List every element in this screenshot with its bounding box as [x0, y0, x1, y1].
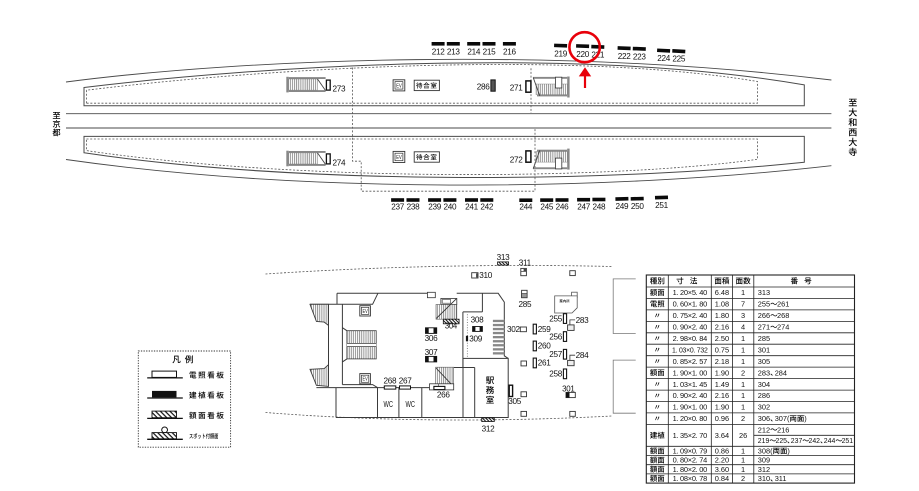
svg-text:268: 268: [777, 311, 789, 320]
svg-text:1. 09×0. 79: 1. 09×0. 79: [673, 447, 708, 456]
svg-text:237: 237: [791, 438, 803, 445]
svg-text:306: 306: [425, 334, 439, 343]
svg-text:1.80: 1.80: [715, 311, 729, 320]
svg-text:212: 212: [758, 425, 770, 434]
svg-text:1: 1: [741, 357, 745, 366]
svg-text:250: 250: [631, 202, 645, 211]
svg-text:241: 241: [465, 203, 479, 212]
svg-text:1. 03×0. 732: 1. 03×0. 732: [672, 347, 708, 354]
svg-text:1: 1: [741, 380, 745, 389]
svg-text:219: 219: [554, 49, 568, 58]
svg-text:2: 2: [741, 414, 745, 423]
svg-text:1: 1: [741, 391, 745, 400]
svg-text:255: 255: [549, 314, 563, 323]
svg-text:306: 306: [758, 414, 770, 423]
svg-text:286: 286: [477, 82, 491, 91]
svg-text:3: 3: [741, 311, 745, 320]
svg-text:307(: 307(: [775, 414, 790, 423]
svg-text:285: 285: [758, 334, 770, 343]
svg-text:284: 284: [775, 368, 787, 377]
svg-text:0. 90×2. 40: 0. 90×2. 40: [673, 391, 708, 400]
svg-text:1: 1: [741, 465, 745, 474]
svg-text:1. 90×1. 00: 1. 90×1. 00: [673, 368, 708, 377]
svg-text:304: 304: [445, 322, 458, 331]
svg-text:3.64: 3.64: [715, 431, 729, 440]
svg-text:0. 90×2. 40: 0. 90×2. 40: [673, 323, 708, 332]
svg-text:WC: WC: [405, 399, 415, 409]
svg-text:271: 271: [510, 83, 524, 92]
svg-text:6.48: 6.48: [715, 288, 729, 297]
svg-text:WC: WC: [384, 399, 394, 409]
svg-text:0.96: 0.96: [715, 414, 729, 423]
svg-text:242: 242: [809, 438, 821, 445]
svg-text:0. 60×1. 80: 0. 60×1. 80: [673, 300, 708, 309]
svg-text:222: 222: [618, 52, 632, 61]
svg-text:238: 238: [407, 203, 421, 212]
svg-text:2: 2: [741, 368, 745, 377]
svg-text:2.50: 2.50: [715, 334, 729, 343]
svg-text:220: 220: [576, 50, 590, 59]
svg-text:308(: 308(: [758, 447, 773, 456]
svg-text:1. 80×2. 00: 1. 80×2. 00: [673, 465, 708, 474]
svg-text:224: 224: [657, 54, 671, 63]
svg-text:EV: EV: [396, 83, 402, 89]
svg-text:248: 248: [593, 202, 607, 211]
svg-text:283: 283: [576, 316, 590, 325]
svg-text:244: 244: [824, 438, 836, 445]
svg-text:251: 251: [842, 438, 854, 445]
svg-text:312: 312: [758, 465, 770, 474]
svg-text:1.90: 1.90: [715, 368, 729, 377]
svg-text:3.60: 3.60: [715, 465, 729, 474]
svg-text:1: 1: [741, 345, 745, 354]
svg-text:1: 1: [741, 288, 745, 297]
svg-text:311: 311: [775, 474, 787, 483]
svg-text:225: 225: [776, 438, 788, 445]
svg-text:309: 309: [469, 335, 483, 344]
svg-text:313: 313: [497, 253, 511, 262]
svg-text:223: 223: [633, 52, 647, 61]
svg-text:257: 257: [549, 350, 563, 359]
svg-text:268: 268: [384, 377, 398, 386]
svg-text:309: 309: [758, 456, 770, 465]
svg-text:259: 259: [538, 325, 552, 334]
svg-text:237: 237: [391, 203, 405, 212]
svg-text:302: 302: [507, 325, 521, 334]
svg-text:313: 313: [758, 288, 770, 297]
svg-text:2. 98×0. 84: 2. 98×0. 84: [673, 334, 708, 343]
svg-text:2: 2: [741, 474, 745, 483]
svg-text:284: 284: [576, 351, 590, 360]
svg-text:273: 273: [333, 85, 347, 94]
svg-text:258: 258: [549, 369, 563, 378]
svg-text:0. 80×2. 74: 0. 80×2. 74: [673, 456, 708, 465]
svg-text:246: 246: [556, 203, 570, 212]
svg-text:214: 214: [467, 48, 481, 57]
svg-text:2.16: 2.16: [715, 391, 729, 400]
svg-text:242: 242: [480, 203, 494, 212]
svg-text:283: 283: [758, 368, 770, 377]
svg-text:274: 274: [777, 323, 789, 332]
svg-text:1: 1: [741, 456, 745, 465]
svg-text:286: 286: [758, 391, 770, 400]
svg-text:1. 35×2. 70: 1. 35×2. 70: [673, 431, 708, 440]
svg-text:272: 272: [510, 156, 524, 165]
svg-text:266: 266: [437, 390, 451, 399]
svg-text:247: 247: [577, 202, 591, 211]
svg-text:1: 1: [741, 403, 745, 412]
svg-text:0. 85×2. 57: 0. 85×2. 57: [673, 357, 708, 366]
svg-text:0.86: 0.86: [715, 447, 729, 456]
svg-text:1: 1: [741, 447, 745, 456]
svg-text:305: 305: [758, 357, 770, 366]
svg-text:261: 261: [777, 300, 789, 309]
svg-text:1. 20×0. 80: 1. 20×0. 80: [673, 414, 708, 423]
svg-text:245: 245: [540, 203, 554, 212]
svg-text:285: 285: [519, 300, 533, 309]
svg-text:255: 255: [758, 300, 770, 309]
svg-text:1.49: 1.49: [715, 380, 729, 389]
svg-text:213: 213: [447, 48, 461, 57]
svg-text:1.08: 1.08: [715, 300, 729, 309]
svg-text:266: 266: [758, 311, 770, 320]
svg-text:7: 7: [741, 300, 745, 309]
svg-text:267: 267: [399, 377, 413, 386]
svg-text:216: 216: [777, 425, 789, 434]
svg-text:): ): [804, 414, 806, 423]
svg-text:1. 03×1. 45: 1. 03×1. 45: [673, 380, 708, 389]
svg-text:1. 20×5. 40: 1. 20×5. 40: [673, 288, 708, 297]
svg-text:212: 212: [432, 48, 446, 57]
svg-text:311: 311: [519, 259, 532, 268]
svg-text:302: 302: [758, 403, 770, 412]
svg-text:1. 08×0. 78: 1. 08×0. 78: [673, 474, 708, 483]
svg-text:308: 308: [471, 315, 485, 324]
svg-text:0.84: 0.84: [715, 474, 729, 483]
svg-text:): ): [787, 447, 789, 456]
svg-text:271: 271: [758, 323, 770, 332]
svg-text:310: 310: [479, 271, 493, 280]
svg-text:EV: EV: [363, 377, 369, 383]
svg-text:261: 261: [538, 359, 552, 368]
svg-text:EV: EV: [396, 155, 402, 161]
svg-text:260: 260: [538, 342, 552, 351]
svg-text:1.90: 1.90: [715, 403, 729, 412]
svg-text:0.75: 0.75: [715, 345, 729, 354]
svg-text:244: 244: [519, 203, 533, 212]
svg-text:2.18: 2.18: [715, 357, 729, 366]
svg-text:0. 75×2. 40: 0. 75×2. 40: [673, 311, 708, 320]
svg-text:216: 216: [503, 48, 517, 57]
svg-text:305: 305: [508, 397, 522, 406]
svg-text:26: 26: [739, 431, 747, 440]
svg-text:225: 225: [672, 54, 686, 63]
svg-text:215: 215: [483, 48, 497, 57]
svg-text:4: 4: [741, 323, 745, 332]
svg-text:249: 249: [616, 202, 630, 211]
svg-text:1: 1: [741, 334, 745, 343]
svg-text:274: 274: [333, 158, 347, 167]
svg-text:1. 90×1. 00: 1. 90×1. 00: [673, 403, 708, 412]
svg-text:EV: EV: [363, 309, 369, 315]
svg-text:256: 256: [549, 332, 563, 341]
svg-text:219: 219: [758, 438, 770, 445]
svg-text:310: 310: [758, 474, 770, 483]
svg-text:301: 301: [758, 345, 770, 354]
svg-text:2.16: 2.16: [715, 323, 729, 332]
svg-text:312: 312: [482, 424, 496, 433]
svg-text:304: 304: [758, 380, 770, 389]
svg-text:239: 239: [428, 203, 442, 212]
svg-text:307: 307: [425, 348, 439, 357]
svg-text:240: 240: [444, 203, 458, 212]
svg-text:2.20: 2.20: [715, 456, 729, 465]
svg-text:251: 251: [655, 201, 669, 210]
